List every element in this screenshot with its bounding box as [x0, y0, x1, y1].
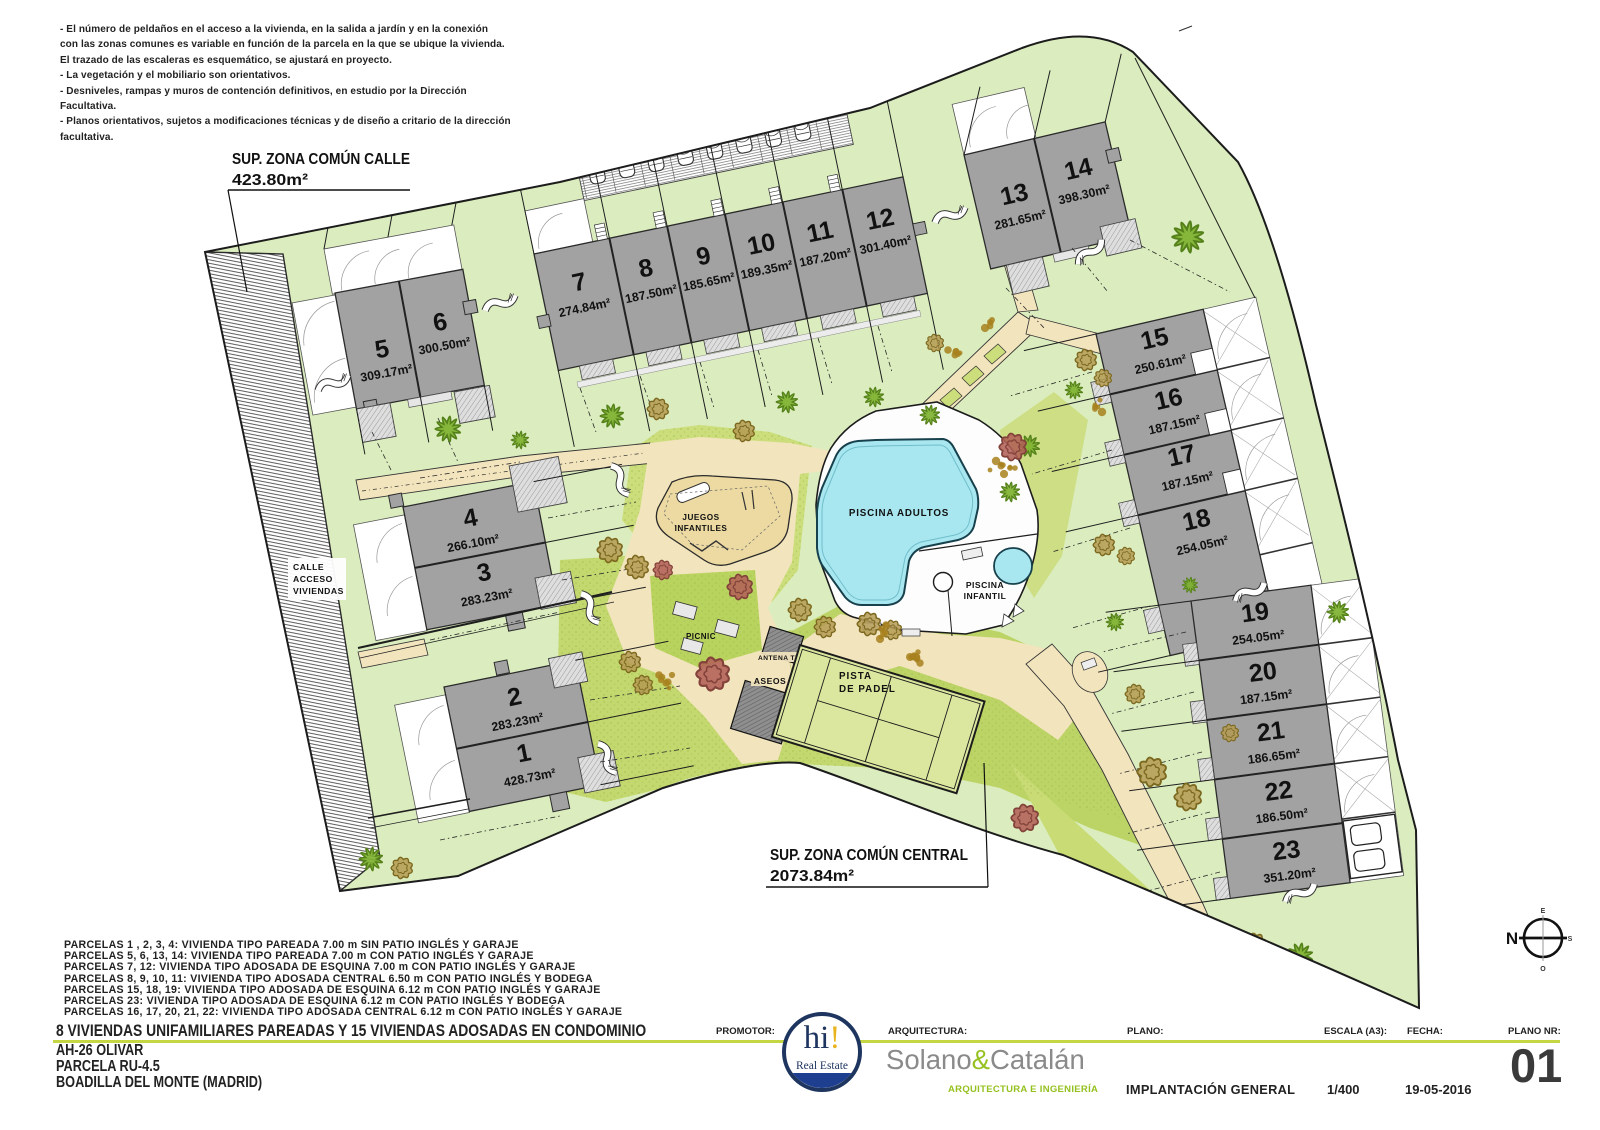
svg-text:21: 21 — [1255, 716, 1286, 747]
svg-text:ACCESO: ACCESO — [293, 574, 333, 584]
svg-text:PISCINA: PISCINA — [966, 580, 1004, 590]
svg-text:423.80m²: 423.80m² — [232, 172, 308, 189]
svg-text:10: 10 — [745, 228, 778, 261]
svg-text:E: E — [1541, 908, 1546, 915]
svg-text:SUP. ZONA COMÚN CALLE: SUP. ZONA COMÚN CALLE — [232, 149, 410, 168]
svg-text:PISTA: PISTA — [839, 671, 872, 682]
svg-text:S: S — [1568, 936, 1573, 943]
svg-text:VIVIENDAS: VIVIENDAS — [293, 586, 344, 596]
svg-text:INFANTILES: INFANTILES — [675, 524, 728, 533]
svg-text:DE PADEL: DE PADEL — [839, 684, 896, 695]
svg-text:N: N — [1506, 929, 1518, 948]
svg-text:PISCINA ADULTOS: PISCINA ADULTOS — [849, 508, 949, 519]
svg-text:O: O — [1540, 966, 1546, 973]
svg-text:19: 19 — [1239, 597, 1270, 628]
svg-text:INFANTIL: INFANTIL — [964, 591, 1007, 601]
svg-text:20: 20 — [1247, 657, 1278, 688]
svg-text:ASEOS: ASEOS — [754, 676, 787, 686]
svg-text:2073.84m²: 2073.84m² — [770, 868, 854, 885]
svg-text:23: 23 — [1271, 835, 1302, 866]
svg-text:ANTENA TV: ANTENA TV — [758, 655, 800, 662]
svg-text:12: 12 — [864, 203, 897, 236]
svg-text:JUEGOS: JUEGOS — [682, 513, 719, 522]
svg-text:PICNIC: PICNIC — [686, 632, 716, 641]
svg-text:SUP. ZONA COMÚN CENTRAL: SUP. ZONA COMÚN CENTRAL — [770, 845, 968, 864]
svg-text:CALLE: CALLE — [293, 562, 324, 572]
svg-text:22: 22 — [1263, 776, 1294, 807]
